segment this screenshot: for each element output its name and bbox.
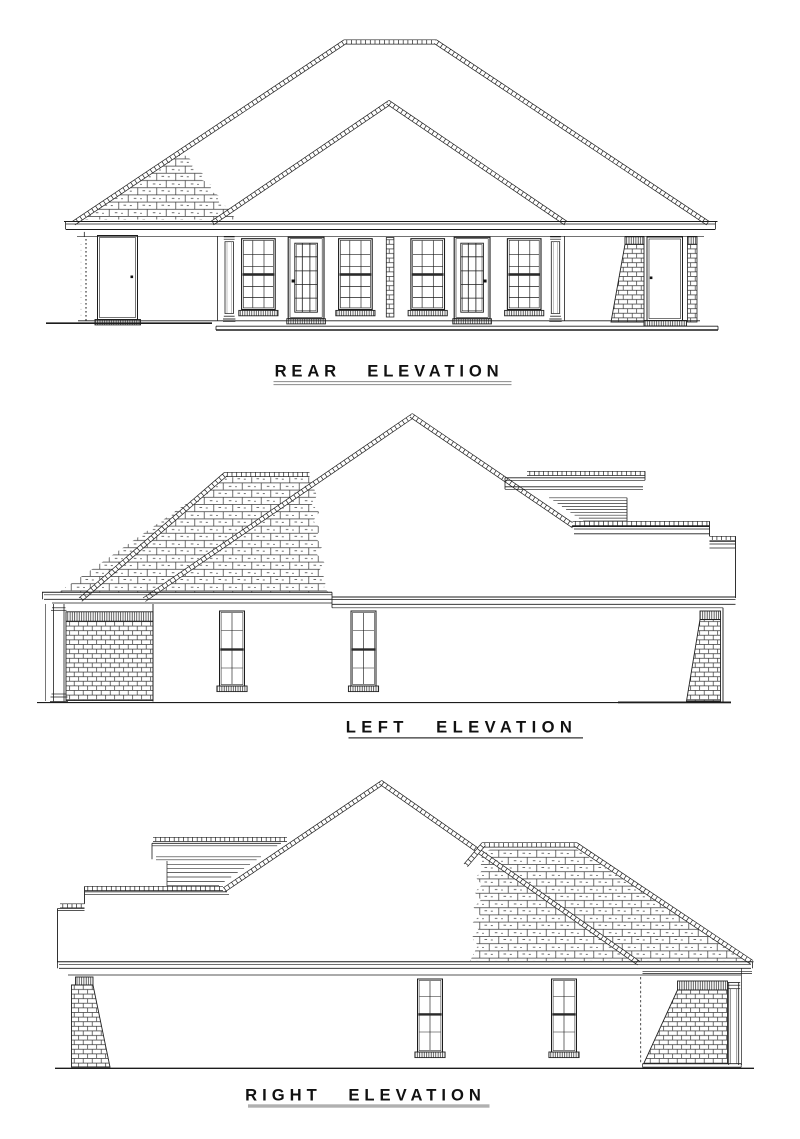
svg-text:LEFT ELEVATION: LEFT ELEVATION xyxy=(346,717,578,736)
svg-text:RIGHT ELEVATION: RIGHT ELEVATION xyxy=(245,1085,486,1104)
svg-text:REAR ELEVATION: REAR ELEVATION xyxy=(275,362,504,381)
